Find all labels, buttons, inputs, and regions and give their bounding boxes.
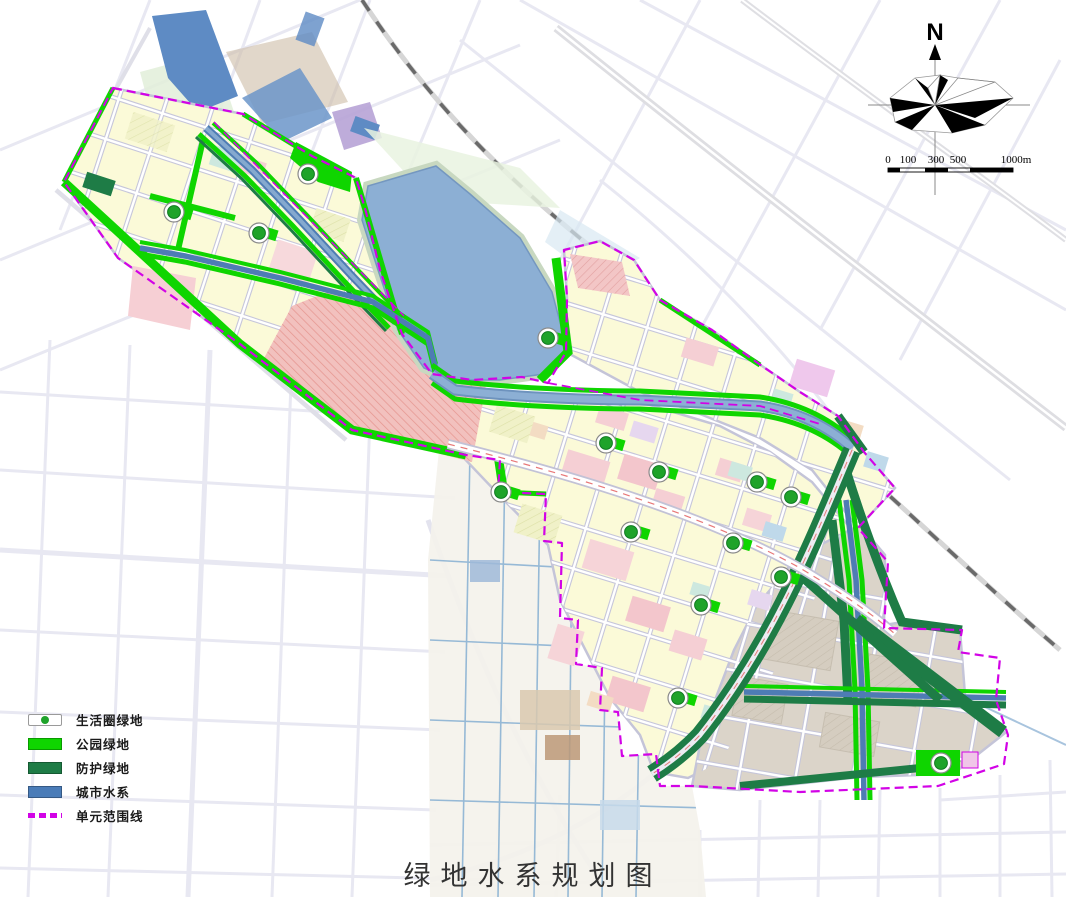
legend-swatch-fill-icon [28, 738, 62, 750]
legend-swatch-fill-icon [28, 762, 62, 774]
scale-tick-label: 100 [900, 154, 917, 166]
legend-swatch-fill-icon [28, 786, 62, 798]
legend-item: 生活圈绿地 [28, 712, 144, 727]
north-arrow-icon [929, 44, 941, 60]
scale-tick-label: 300 [928, 154, 945, 166]
legend-label: 单元范围线 [76, 806, 144, 825]
legend-label: 城市水系 [76, 782, 130, 801]
legend-item: 防护绿地 [28, 760, 144, 775]
scale-tick-label: 500 [950, 154, 967, 166]
legend-item: 单元范围线 [28, 808, 144, 823]
map-canvas: N 0 100 300 500 1000m [0, 0, 1066, 897]
north-label: N [926, 19, 943, 46]
legend-item: 城市水系 [28, 784, 144, 799]
legend-label: 防护绿地 [76, 758, 130, 777]
legend-swatch-dash-icon [28, 813, 62, 818]
legend-label: 生活圈绿地 [76, 710, 144, 729]
planning-map-page: N 0 100 300 500 1000m [0, 0, 1066, 897]
legend-label: 公园绿地 [76, 734, 130, 753]
legend-swatch-marker-icon [28, 714, 62, 726]
legend-item: 公园绿地 [28, 736, 144, 751]
scale-tick-label: 1000m [1001, 154, 1032, 166]
legend: 生活圈绿地公园绿地防护绿地城市水系单元范围线 [28, 712, 144, 823]
map-title: 绿地水系规划图 [0, 854, 1066, 893]
scale-tick-label: 0 [885, 154, 891, 166]
